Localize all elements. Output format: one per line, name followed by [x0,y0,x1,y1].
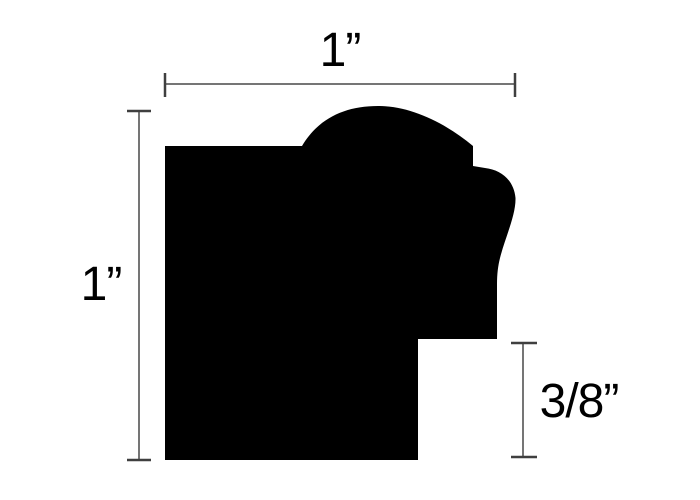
width-dimension-label: 1” [320,24,361,77]
rabbet-dimension-label: 3/8” [540,375,619,428]
height-dimension: 1” [81,111,151,460]
height-dimension-label: 1” [81,258,122,311]
moulding-profile-silhouette [165,106,516,460]
moulding-profile-drawing: 1” 1” 3/8” [0,0,700,500]
rabbet-dimension: 3/8” [511,343,618,457]
diagram-canvas: 1” 1” 3/8” [0,0,700,500]
width-dimension: 1” [165,24,515,97]
